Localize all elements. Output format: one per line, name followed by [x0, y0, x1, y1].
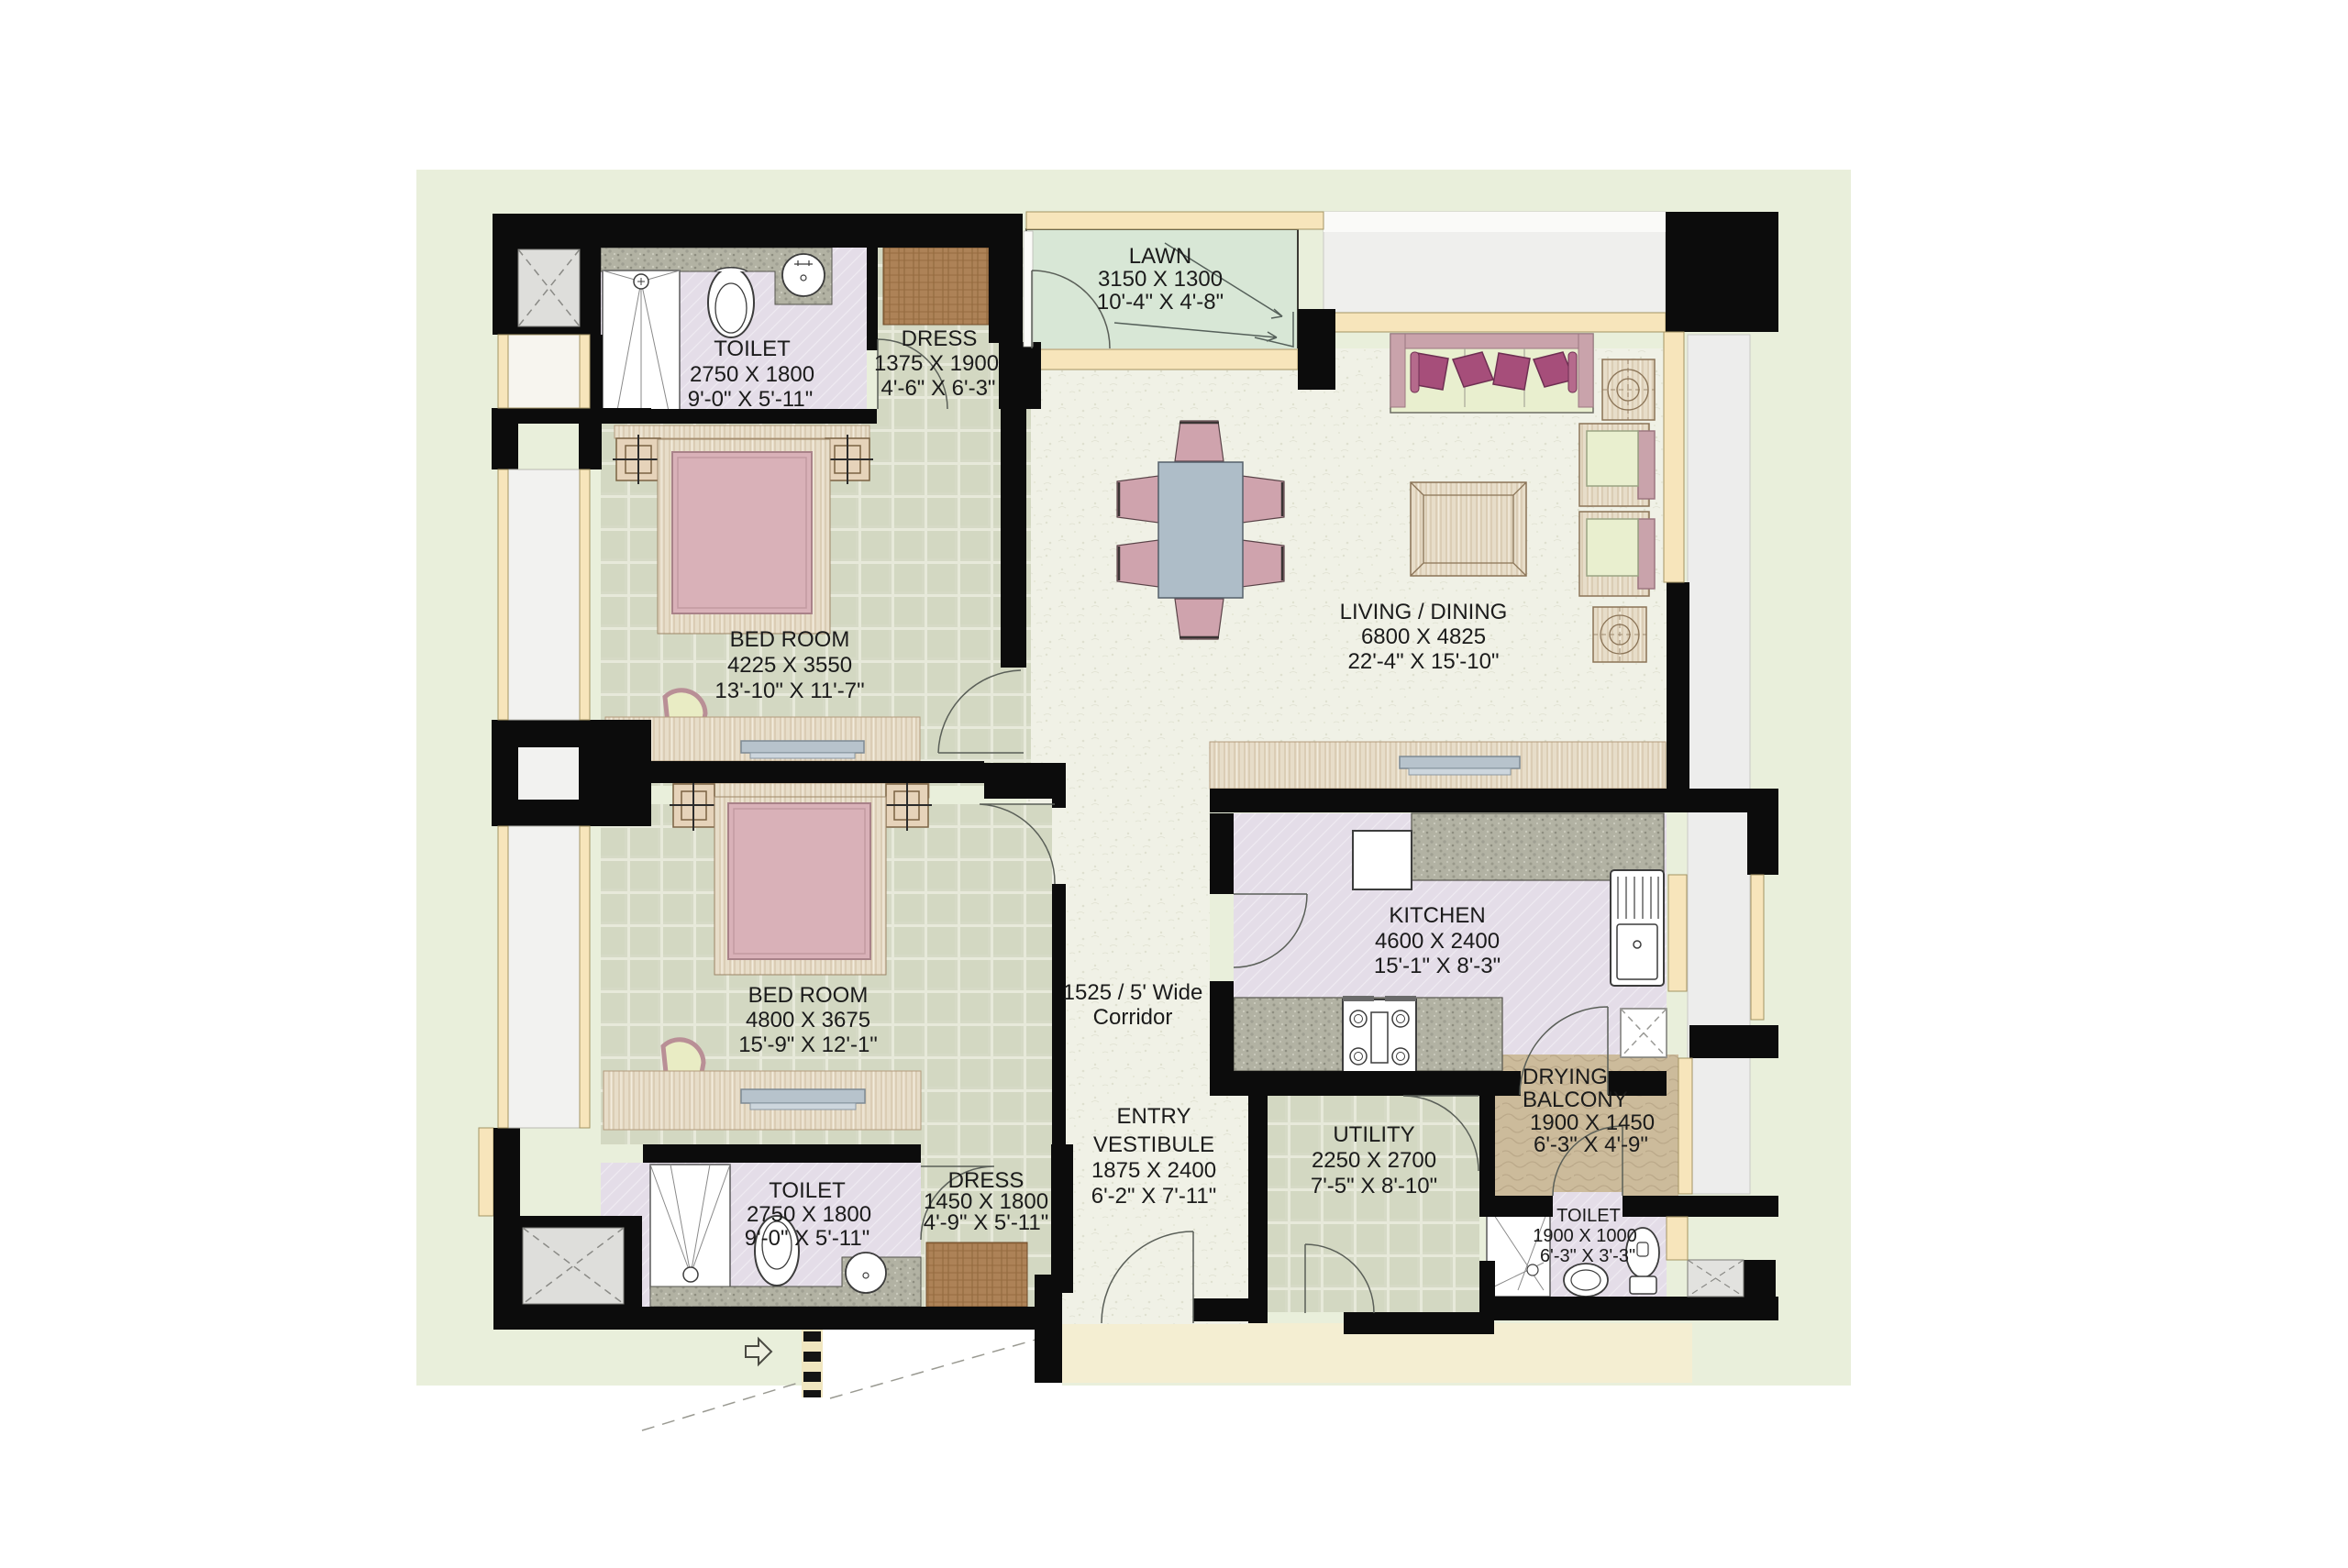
- svg-text:2750 X 1800: 2750 X 1800: [690, 362, 814, 387]
- svg-text:BED ROOM: BED ROOM: [730, 627, 850, 652]
- svg-text:9'-0" X 5'-11": 9'-0" X 5'-11": [688, 387, 814, 412]
- svg-text:Corridor: Corridor: [1093, 1005, 1173, 1030]
- svg-text:BED ROOM: BED ROOM: [748, 983, 869, 1008]
- svg-text:9'-0" X 5'-11": 9'-0" X 5'-11": [745, 1226, 870, 1251]
- svg-text:DRESS: DRESS: [902, 326, 978, 351]
- svg-text:3150 X 1300: 3150 X 1300: [1098, 267, 1223, 292]
- svg-text:4'-6" X 6'-3": 4'-6" X 6'-3": [881, 376, 996, 401]
- svg-text:TOILET: TOILET: [1556, 1206, 1621, 1226]
- svg-text:6800 X 4825: 6800 X 4825: [1361, 624, 1486, 649]
- svg-text:10'-4" X 4'-8": 10'-4" X 4'-8": [1097, 290, 1224, 315]
- svg-text:1375 X 1900: 1375 X 1900: [874, 351, 999, 376]
- svg-text:4225 X 3550: 4225 X 3550: [727, 653, 852, 678]
- svg-text:15'-1" X 8'-3": 15'-1" X 8'-3": [1374, 954, 1501, 978]
- svg-text:2750 X 1800: 2750 X 1800: [747, 1202, 871, 1227]
- svg-text:TOILET: TOILET: [714, 337, 791, 361]
- svg-text:1900 X 1450: 1900 X 1450: [1530, 1110, 1655, 1135]
- svg-text:1875 X 2400: 1875 X 2400: [1091, 1158, 1216, 1183]
- svg-text:4600 X 2400: 4600 X 2400: [1375, 929, 1500, 954]
- svg-text:1525 / 5' Wide: 1525 / 5' Wide: [1063, 980, 1203, 1005]
- svg-text:4800 X 3675: 4800 X 3675: [746, 1008, 870, 1032]
- svg-text:7'-5" X 8'-10": 7'-5" X 8'-10": [1311, 1174, 1437, 1198]
- svg-text:15'-9" X 12'-1": 15'-9" X 12'-1": [738, 1032, 878, 1057]
- svg-text:1900 X 1000: 1900 X 1000: [1533, 1226, 1636, 1246]
- svg-text:22'-4" X 15'-10": 22'-4" X 15'-10": [1348, 649, 1500, 674]
- svg-text:KITCHEN: KITCHEN: [1389, 903, 1485, 928]
- svg-text:4'-9" X 5'-11": 4'-9" X 5'-11": [924, 1210, 1049, 1235]
- svg-text:LAWN: LAWN: [1129, 244, 1191, 269]
- svg-text:6'-3" X 3'-3": 6'-3" X 3'-3": [1540, 1246, 1635, 1266]
- svg-text:ENTRY: ENTRY: [1117, 1104, 1191, 1129]
- svg-text:6'-2" X 7'-11": 6'-2" X 7'-11": [1091, 1184, 1217, 1209]
- svg-text:BALCONY: BALCONY: [1523, 1088, 1628, 1112]
- svg-text:6'-3" X 4'-9": 6'-3" X 4'-9": [1534, 1132, 1648, 1157]
- svg-text:2250 X 2700: 2250 X 2700: [1312, 1148, 1436, 1173]
- svg-text:LIVING / DINING: LIVING / DINING: [1340, 600, 1508, 624]
- svg-text:UTILITY: UTILITY: [1333, 1122, 1414, 1147]
- svg-text:TOILET: TOILET: [769, 1178, 846, 1203]
- svg-text:13'-10" X 11'-7": 13'-10" X 11'-7": [714, 679, 864, 703]
- svg-text:DRYING: DRYING: [1523, 1065, 1608, 1089]
- svg-text:VESTIBULE: VESTIBULE: [1093, 1132, 1214, 1157]
